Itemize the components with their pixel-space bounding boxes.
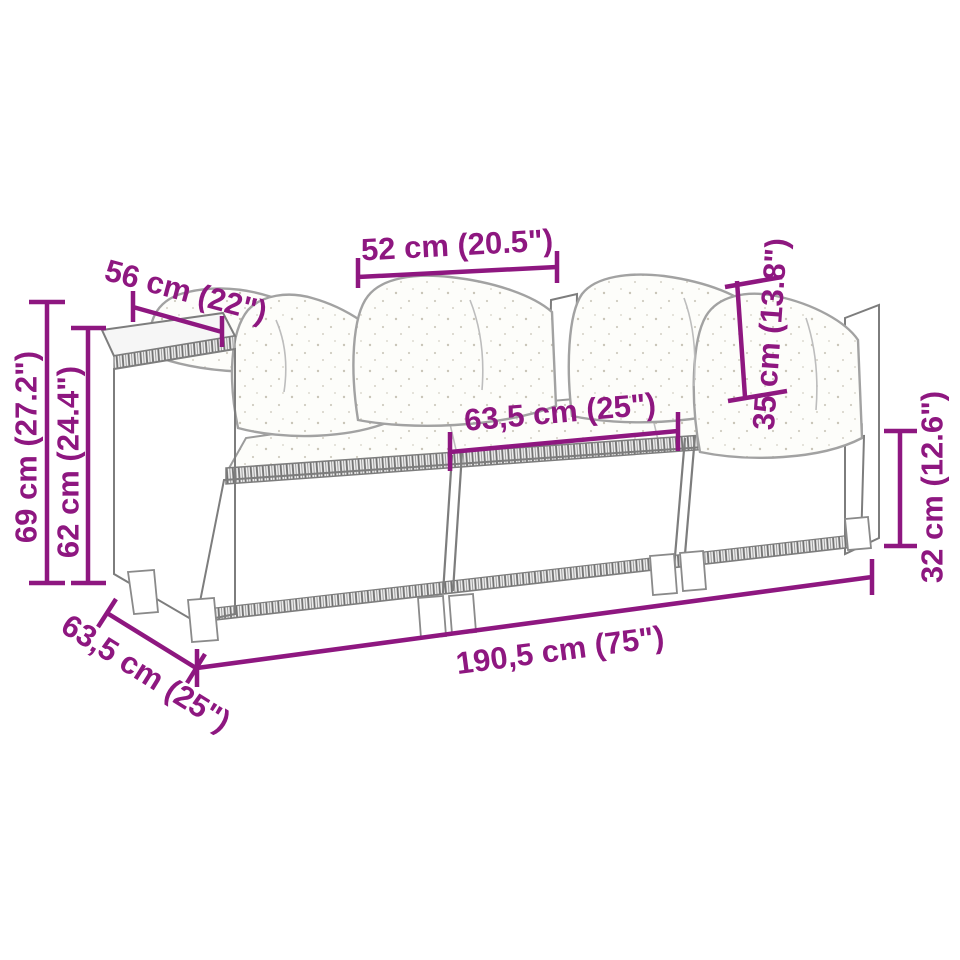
dimension-base-height-label: 32 cm (12.6") xyxy=(915,391,950,583)
dimension-base-height: 32 cm (12.6") xyxy=(884,391,950,583)
sofa-leg xyxy=(845,517,871,550)
dimension-back-height: 62 cm (24.4") xyxy=(51,328,107,583)
sofa-dimension-diagram: 52 cm (20.5") 56 cm (22") 69 cm (27.2") … xyxy=(0,0,960,960)
diagram-canvas: 52 cm (20.5") 56 cm (22") 69 cm (27.2") … xyxy=(0,0,960,960)
sofa-leg xyxy=(449,594,476,634)
dimension-back-height-label: 62 cm (24.4") xyxy=(51,366,86,558)
sofa-leg xyxy=(650,554,677,595)
module-junction-right xyxy=(674,436,695,568)
base-bottom-rail xyxy=(196,534,861,622)
sofa-leg xyxy=(188,598,218,642)
dimension-total-height-label: 69 cm (27.2") xyxy=(9,351,44,543)
sofa-leg xyxy=(128,570,158,614)
dimension-cushion-width-label: 52 cm (20.5") xyxy=(360,222,554,267)
sofa-leg xyxy=(418,596,446,638)
module-junction-left xyxy=(443,453,462,593)
sofa-leg xyxy=(680,551,706,591)
